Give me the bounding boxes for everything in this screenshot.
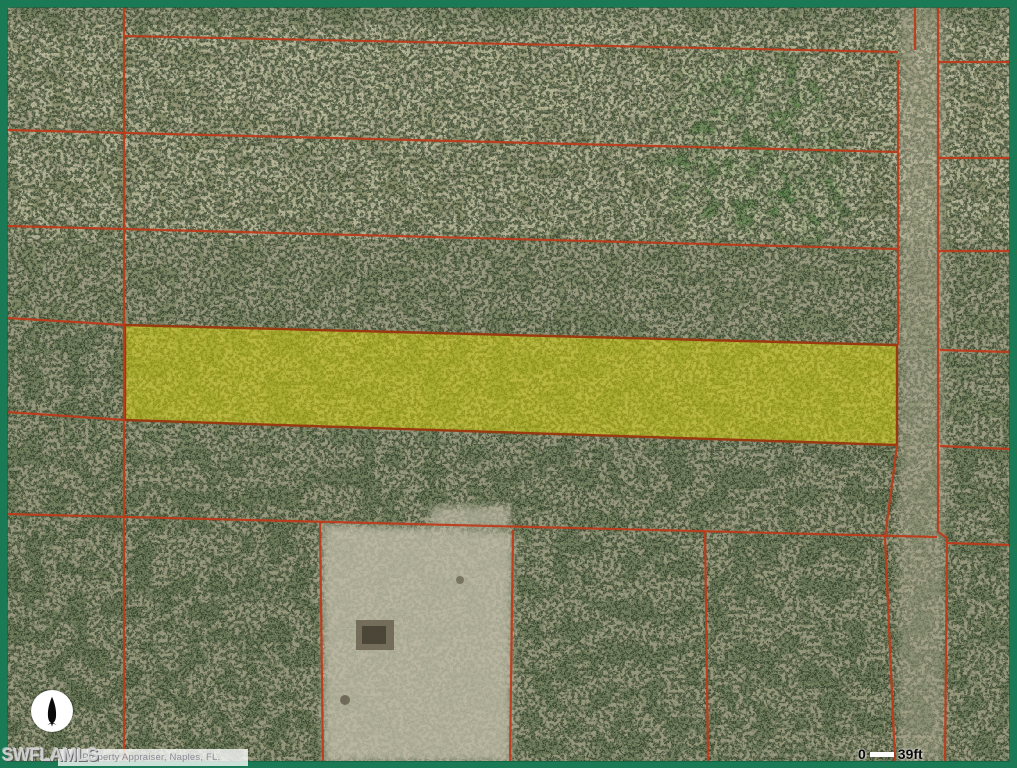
cleared-parcel [322,524,513,762]
aerial-parcel-map[interactable]: nty Property Appraiser, Naples, FL. SWFL… [0,0,1017,768]
map-image [0,0,1017,768]
